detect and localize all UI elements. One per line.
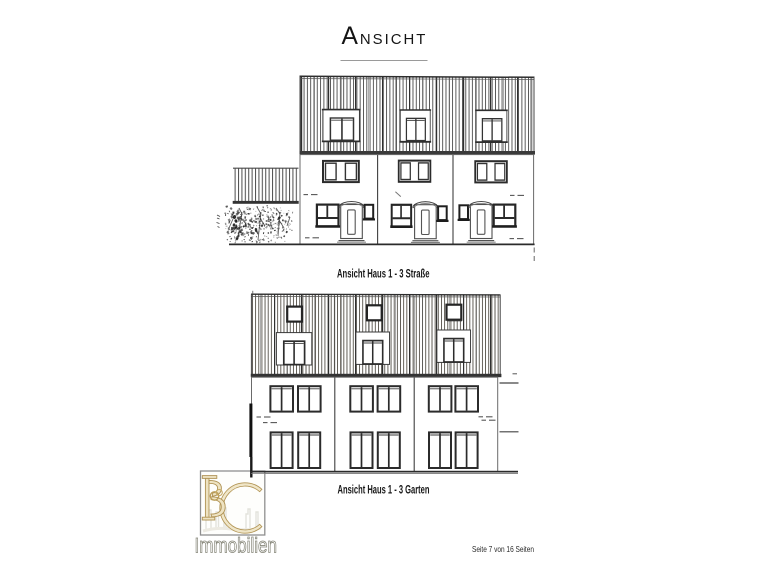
- svg-text:Seite 7 von 16 Seiten: Seite 7 von 16 Seiten: [472, 544, 534, 554]
- svg-text:Ansicht Haus 1 - 3 Garten: Ansicht Haus 1 - 3 Garten: [338, 485, 430, 497]
- svg-text:ANSICHT: ANSICHT: [342, 23, 428, 50]
- svg-text:Immobilien: Immobilien: [195, 534, 278, 558]
- svg-text:Ansicht Haus 1 - 3 Straße: Ansicht Haus 1 - 3 Straße: [337, 269, 430, 281]
